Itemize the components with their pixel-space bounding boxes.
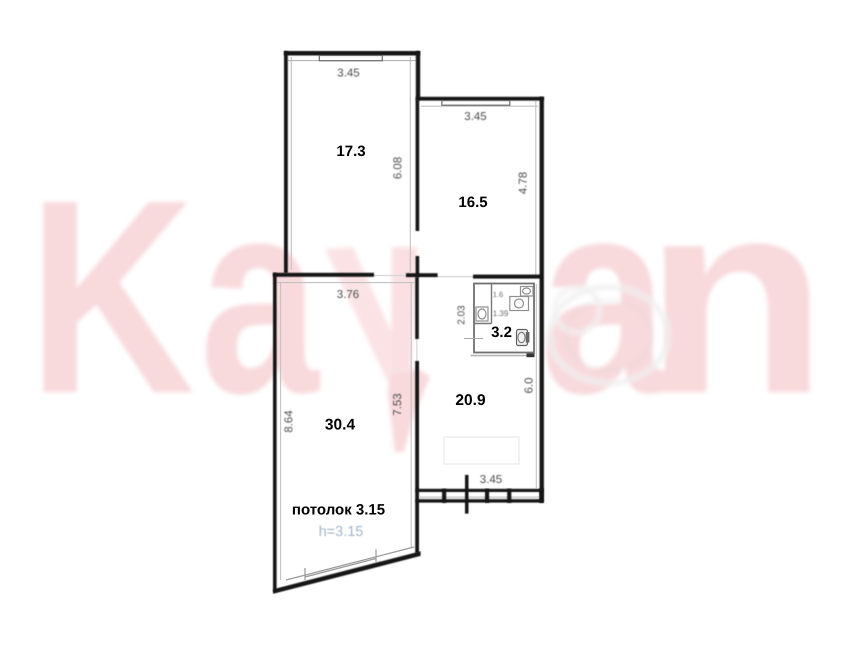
svg-text:17.3: 17.3 bbox=[336, 143, 365, 160]
svg-text:1.6: 1.6 bbox=[493, 290, 503, 299]
svg-text:7.53: 7.53 bbox=[392, 393, 404, 415]
svg-text:потолок 3.15: потолок 3.15 bbox=[292, 502, 385, 519]
svg-text:3.2: 3.2 bbox=[491, 324, 512, 341]
svg-text:h=3.15: h=3.15 bbox=[319, 524, 364, 540]
svg-text:1.39: 1.39 bbox=[493, 309, 509, 318]
svg-text:16.5: 16.5 bbox=[458, 194, 487, 211]
svg-text:6.0: 6.0 bbox=[524, 378, 536, 394]
svg-text:8.64: 8.64 bbox=[283, 410, 295, 433]
svg-text:20.9: 20.9 bbox=[455, 392, 486, 409]
svg-text:a: a bbox=[200, 143, 320, 451]
svg-text:30.4: 30.4 bbox=[325, 417, 356, 434]
svg-text:3.45: 3.45 bbox=[464, 111, 486, 123]
svg-text:2.03: 2.03 bbox=[456, 305, 467, 325]
svg-text:4.78: 4.78 bbox=[518, 172, 530, 194]
svg-text:K: K bbox=[28, 143, 195, 451]
svg-text:3.45: 3.45 bbox=[337, 68, 359, 80]
svg-text:n: n bbox=[644, 143, 828, 451]
svg-text:3.76: 3.76 bbox=[337, 289, 359, 301]
svg-text:3.45: 3.45 bbox=[480, 474, 502, 486]
svg-text:6.08: 6.08 bbox=[392, 157, 404, 179]
